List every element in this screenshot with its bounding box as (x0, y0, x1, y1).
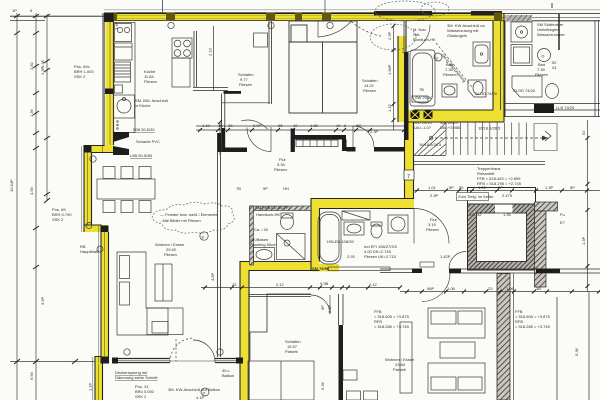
svg-text:6.56: 6.56 (29, 371, 34, 380)
svg-text:6: 6 (344, 123, 347, 128)
svg-text:UA=-1.0?: UA=-1.0? (414, 125, 432, 130)
svg-text:LLB 74/20: LLB 74/20 (556, 105, 575, 110)
svg-text:SM 76/96: SM 76/96 (312, 266, 330, 271)
svg-text:3B: 3B (536, 286, 541, 291)
svg-text:Fliesen: Fliesen (239, 82, 252, 87)
svg-text:1.15: 1.15 (387, 103, 392, 112)
svg-text:0.9B: 0.9B (320, 281, 329, 286)
svg-text:Parkett: Parkett (393, 367, 407, 372)
svg-text:24: 24 (552, 65, 557, 70)
svg-text:98P: 98P (427, 286, 434, 291)
svg-text:1.26: 1.26 (478, 185, 487, 190)
svg-text:LB. 32: LB. 32 (470, 212, 482, 217)
svg-text:7B: 7B (236, 186, 241, 191)
svg-text:Ca. / 40: Ca. / 40 (254, 227, 269, 232)
svg-text:Bordluch-HK: Bordluch-HK (413, 37, 436, 42)
svg-text:10: 10 (336, 123, 341, 128)
svg-text:E7: E7 (560, 220, 566, 225)
svg-text:5P: 5P (449, 185, 454, 190)
svg-text:4.8P: 4.8P (210, 272, 215, 281)
svg-text:Fliesen: Fliesen (363, 88, 376, 93)
svg-text:Fliesen: Fliesen (274, 167, 287, 172)
svg-text:16/18.5/28.5: 16/18.5/28.5 (478, 126, 501, 131)
svg-text:in Küche: in Küche (135, 103, 151, 108)
svg-text:50B 50.5/30: 50B 50.5/30 (133, 127, 155, 132)
svg-text:5P: 5P (570, 185, 575, 190)
svg-text:2.12: 2.12 (276, 282, 285, 287)
svg-text:SSK 2: SSK 2 (74, 74, 86, 79)
svg-text:1.08: 1.08 (447, 286, 456, 291)
svg-text:= 518.285 = +3.745: = 518.285 = +3.745 (374, 324, 410, 329)
svg-text:1.38: 1.38 (40, 59, 45, 68)
svg-text:Glaskugeln: Glaskugeln (447, 33, 467, 38)
svg-text:9P: 9P (320, 305, 325, 310)
svg-text:2.12: 2.12 (369, 282, 378, 287)
svg-text:9P: 9P (263, 186, 268, 191)
svg-text:2.13: 2.13 (208, 47, 213, 56)
svg-text:3.9P: 3.9P (40, 296, 45, 305)
svg-text:Handtuch-HK: Handtuch-HK (256, 212, 280, 217)
svg-text:10: 10 (293, 123, 298, 128)
svg-text:Balkon: Balkon (222, 373, 234, 378)
svg-text:3.3P: 3.3P (327, 304, 332, 313)
svg-text:Wasserzummer: Wasserzummer (537, 32, 566, 37)
svg-text:1.42P: 1.42P (440, 254, 451, 259)
svg-text:D: D (542, 54, 545, 59)
svg-text:1.1P: 1.1P (88, 382, 93, 391)
svg-text:1.98P: 1.98P (387, 64, 392, 75)
svg-text:D: D (203, 391, 206, 396)
svg-text:Fliesen: Fliesen (164, 252, 177, 257)
svg-text:Parkett: Parkett (285, 349, 299, 354)
svg-text:HSLED 108/39: HSLED 108/39 (327, 239, 354, 244)
svg-text:Fliesen: Fliesen (535, 72, 548, 77)
svg-text:16/18.5/28.5: 16/18.5/28.5 (419, 142, 442, 147)
svg-text:2.3P: 2.3P (387, 31, 392, 40)
svg-text:2.475: 2.475 (502, 193, 513, 198)
svg-text:D: D (202, 235, 205, 240)
svg-text:2.3P: 2.3P (370, 129, 379, 134)
svg-text:Schacht PVC: Schacht PVC (136, 139, 160, 144)
svg-text:— Fenster bzw. weiß / Elemente: — Fenster bzw. weiß / Elemente (160, 212, 218, 217)
svg-text:10.44P: 10.44P (9, 179, 14, 192)
svg-text:UA=+3.985: UA=+3.985 (440, 125, 461, 130)
svg-text:SSK 2: SSK 2 (135, 394, 147, 399)
svg-text:- Alle Bilder mit Fliesen: - Alle Bilder mit Fliesen (160, 218, 201, 223)
svg-text:33: 33 (228, 123, 233, 128)
svg-text:Fliesen UK=2.715: Fliesen UK=2.715 (364, 254, 397, 259)
svg-text:9P: 9P (356, 123, 361, 128)
svg-text:Paneling 50cm: Paneling 50cm (250, 242, 277, 247)
svg-text:3.4P: 3.4P (114, 21, 119, 30)
svg-text:5.36: 5.36 (574, 347, 579, 356)
svg-text:4.1P: 4.1P (196, 395, 205, 400)
svg-text:2.3P: 2.3P (430, 193, 439, 198)
svg-text:Fu: Fu (560, 212, 565, 217)
svg-text:= 518.285 = +3.745: = 518.285 = +3.745 (515, 324, 551, 329)
svg-text:Hauptblatt: Hauptblatt (80, 249, 99, 254)
svg-text:HH: HH (283, 186, 289, 191)
svg-text:2.93: 2.93 (347, 254, 356, 259)
svg-text:3M. KW-Anschluß auf Balkon: 3M. KW-Anschluß auf Balkon (168, 387, 220, 392)
svg-text:52: 52 (581, 130, 586, 135)
svg-text:SLOD 74/20: SLOD 74/20 (513, 88, 536, 93)
svg-text:SW 20/30: SW 20/30 (415, 95, 433, 100)
svg-text:2.82: 2.82 (29, 61, 34, 70)
svg-text:1.3P: 1.3P (545, 185, 554, 190)
svg-text:SLOD 74/20: SLOD 74/20 (475, 91, 498, 96)
svg-text:SM (HSLED 80/2P): SM (HSLED 80/2P) (255, 205, 290, 210)
svg-text:1.35: 1.35 (503, 212, 512, 217)
svg-text:1.19: 1.19 (202, 123, 211, 128)
svg-text:Zum Tiefg. im Keller: Zum Tiefg. im Keller (458, 194, 494, 199)
svg-text:L5B 50.5/3B: L5B 50.5/3B (130, 153, 152, 158)
svg-text:65: 65 (278, 123, 283, 128)
svg-text:Fliesen: Fliesen (144, 79, 157, 84)
svg-text:1.01: 1.01 (428, 185, 437, 190)
svg-text:Fliesen: Fliesen (426, 227, 439, 232)
svg-text:4.56: 4.56 (29, 186, 34, 195)
svg-text:7B: 7B (419, 87, 424, 92)
svg-text:0.9P: 0.9P (253, 123, 262, 128)
svg-text:1.3P: 1.3P (581, 236, 586, 245)
svg-text:23: 23 (488, 286, 493, 291)
svg-text:5.36: 5.36 (320, 381, 325, 390)
svg-text:1.06: 1.06 (506, 286, 515, 291)
svg-text:SSK 2: SSK 2 (52, 217, 64, 222)
svg-text:Fliesen: Fliesen (443, 72, 456, 77)
svg-text:1.3P: 1.3P (40, 66, 45, 75)
svg-text:5: 5 (30, 8, 33, 13)
svg-text:D: D (436, 56, 439, 61)
svg-text:1.39: 1.39 (29, 108, 34, 117)
svg-text:7: 7 (407, 174, 410, 180)
svg-text:1P: 1P (12, 8, 17, 13)
svg-text:1.65: 1.65 (310, 123, 319, 128)
svg-text:Dämmung siehe Schnitt: Dämmung siehe Schnitt (115, 375, 158, 380)
